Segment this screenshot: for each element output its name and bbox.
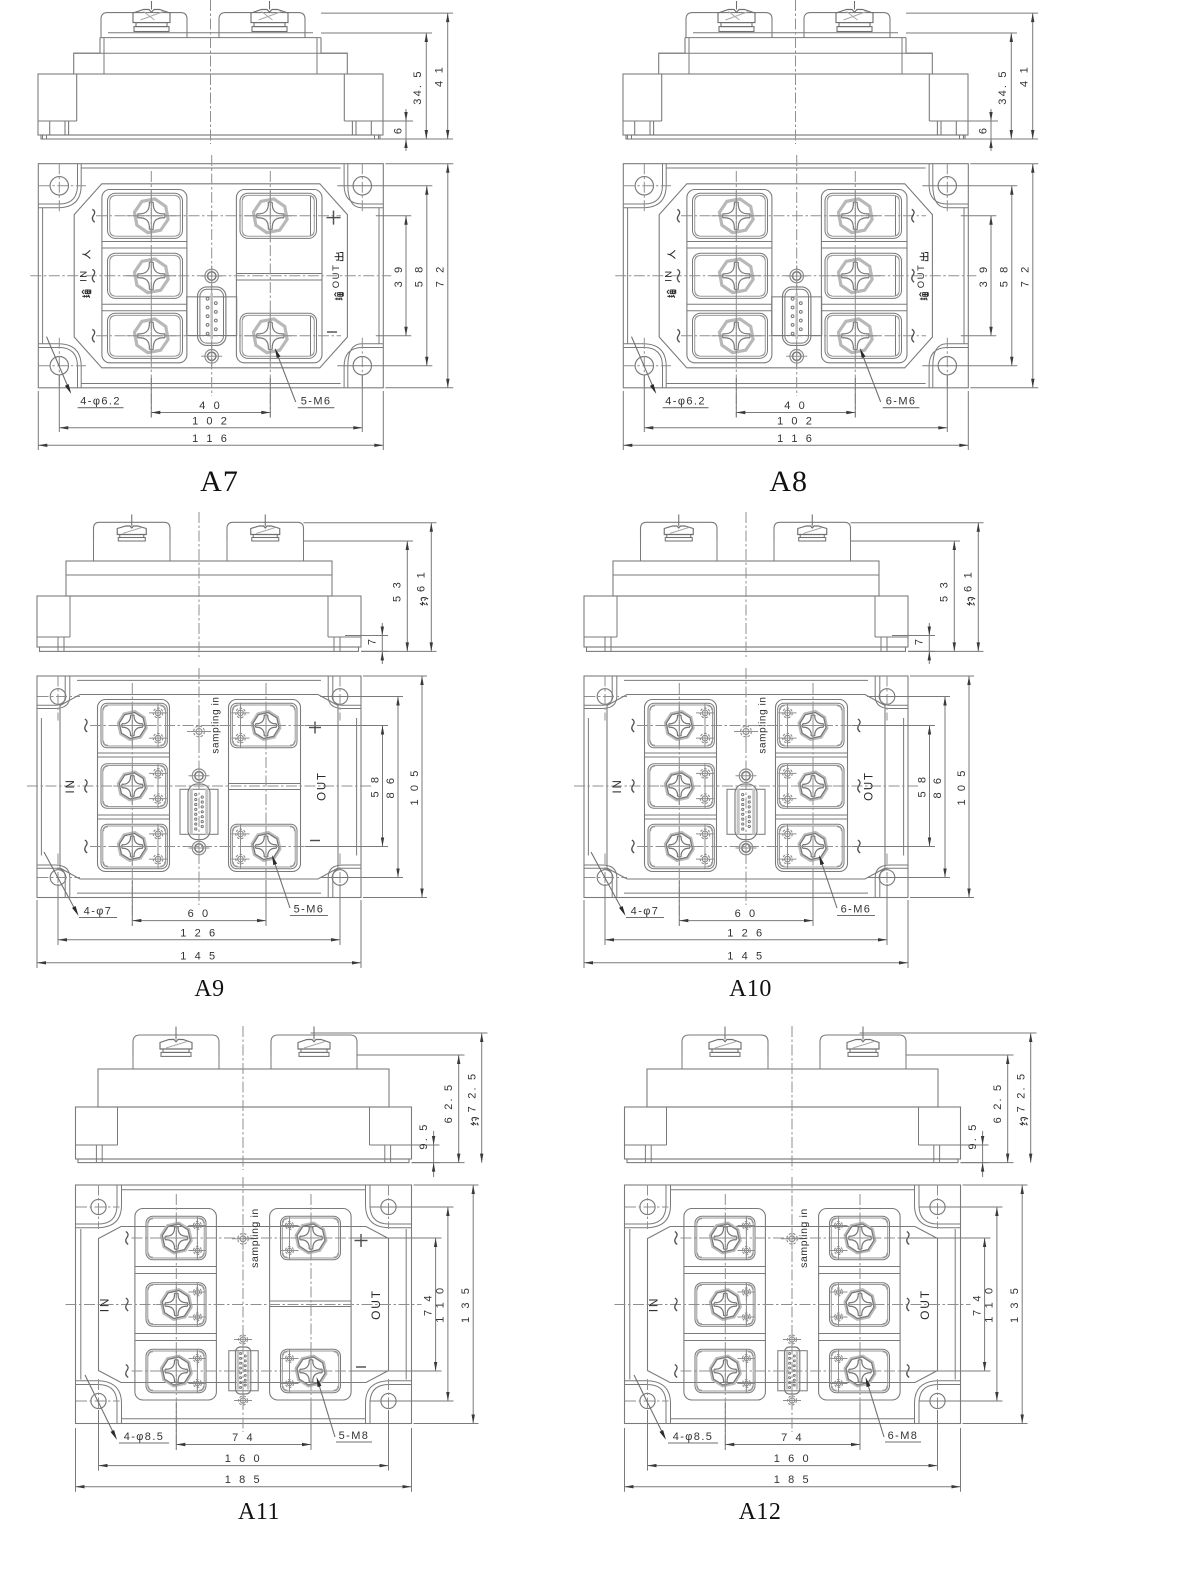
svg-text:7 4: 7 4 bbox=[232, 1432, 255, 1444]
svg-text:1 1 0: 1 1 0 bbox=[435, 1285, 447, 1322]
svg-text:5 8: 5 8 bbox=[414, 264, 426, 287]
svg-text:4-φ6.2: 4-φ6.2 bbox=[80, 396, 121, 408]
svg-text:6 2. 5: 6 2. 5 bbox=[992, 1083, 1004, 1124]
svg-text:IN: IN bbox=[612, 778, 624, 793]
svg-text:1 0 2: 1 0 2 bbox=[777, 415, 814, 427]
svg-text:6 1: 6 1 bbox=[963, 570, 975, 592]
svg-text:1 8 5: 1 8 5 bbox=[774, 1474, 811, 1486]
svg-text:8 6: 8 6 bbox=[385, 775, 397, 798]
svg-text:5-M6: 5-M6 bbox=[301, 396, 332, 408]
svg-text:7 4: 7 4 bbox=[971, 1293, 983, 1316]
svg-text:4-φ6.2: 4-φ6.2 bbox=[665, 396, 706, 408]
svg-text:3 9: 3 9 bbox=[393, 264, 405, 287]
svg-text:1 6 0: 1 6 0 bbox=[774, 1453, 811, 1465]
svg-text:A7: A7 bbox=[200, 465, 239, 498]
svg-text:IN: IN bbox=[98, 1297, 112, 1313]
svg-text:A12: A12 bbox=[739, 1499, 782, 1525]
svg-text:IN: IN bbox=[664, 269, 675, 282]
svg-text:1 3 5: 1 3 5 bbox=[1009, 1286, 1021, 1323]
svg-text:6-M6: 6-M6 bbox=[841, 904, 872, 916]
svg-text:1 4 5: 1 4 5 bbox=[180, 950, 217, 962]
svg-text:5-M8: 5-M8 bbox=[339, 1430, 370, 1442]
svg-text:1 0 5: 1 0 5 bbox=[409, 768, 421, 805]
svg-text:4-φ8.5: 4-φ8.5 bbox=[673, 1431, 714, 1443]
svg-text:34. 5: 34. 5 bbox=[412, 69, 424, 104]
svg-text:1 2 6: 1 2 6 bbox=[180, 927, 217, 939]
svg-text:IN: IN bbox=[65, 778, 77, 793]
svg-text:8 6: 8 6 bbox=[932, 775, 944, 798]
svg-text:4 0: 4 0 bbox=[784, 400, 807, 412]
svg-text:6-M8: 6-M8 bbox=[888, 1430, 919, 1442]
svg-text:1 6 0: 1 6 0 bbox=[225, 1453, 262, 1465]
svg-text:A11: A11 bbox=[238, 1499, 280, 1525]
svg-text:4-φ7: 4-φ7 bbox=[84, 906, 113, 918]
svg-text:3 9: 3 9 bbox=[978, 264, 990, 287]
svg-text:7: 7 bbox=[914, 637, 926, 645]
svg-text:4 1: 4 1 bbox=[1018, 65, 1030, 87]
svg-text:7 4: 7 4 bbox=[422, 1293, 434, 1316]
svg-text:6 0: 6 0 bbox=[188, 908, 211, 920]
svg-text:OUT: OUT bbox=[863, 771, 875, 801]
svg-text:1 1 6: 1 1 6 bbox=[192, 433, 229, 445]
svg-text:1 4 5: 1 4 5 bbox=[727, 950, 764, 962]
svg-text:7 2: 7 2 bbox=[1020, 264, 1032, 287]
svg-text:4-φ7: 4-φ7 bbox=[631, 906, 660, 918]
svg-text:OUT: OUT bbox=[916, 264, 927, 289]
svg-text:IN: IN bbox=[79, 269, 90, 282]
svg-text:6-M6: 6-M6 bbox=[886, 396, 917, 408]
svg-text:4-φ8.5: 4-φ8.5 bbox=[124, 1431, 165, 1443]
svg-text:9. 5: 9. 5 bbox=[418, 1122, 430, 1149]
svg-text:7: 7 bbox=[367, 637, 379, 645]
svg-text:5 3: 5 3 bbox=[939, 580, 951, 602]
svg-text:7 4: 7 4 bbox=[781, 1432, 804, 1444]
svg-text:6 0: 6 0 bbox=[735, 908, 758, 920]
svg-text:6 1: 6 1 bbox=[416, 570, 428, 592]
svg-text:5 3: 5 3 bbox=[392, 580, 404, 602]
svg-text:5 8: 5 8 bbox=[369, 774, 381, 797]
svg-text:7 2. 5: 7 2. 5 bbox=[466, 1072, 478, 1113]
svg-text:9. 5: 9. 5 bbox=[967, 1122, 979, 1149]
svg-text:5 8: 5 8 bbox=[916, 774, 928, 797]
svg-text:1 8 5: 1 8 5 bbox=[225, 1474, 262, 1486]
svg-text:1 2 6: 1 2 6 bbox=[727, 927, 764, 939]
svg-text:5 8: 5 8 bbox=[999, 264, 1011, 287]
svg-text:1 1 0: 1 1 0 bbox=[984, 1285, 996, 1322]
svg-text:A8: A8 bbox=[769, 465, 808, 498]
svg-text:A10: A10 bbox=[729, 976, 772, 1002]
svg-text:34. 5: 34. 5 bbox=[997, 69, 1009, 104]
svg-text:A9: A9 bbox=[194, 976, 224, 1002]
svg-text:IN: IN bbox=[647, 1297, 661, 1313]
svg-text:1 1 6: 1 1 6 bbox=[777, 433, 814, 445]
svg-text:6: 6 bbox=[978, 126, 990, 134]
svg-text:6: 6 bbox=[393, 126, 405, 134]
svg-text:7 2. 5: 7 2. 5 bbox=[1015, 1072, 1027, 1113]
svg-text:OUT: OUT bbox=[331, 264, 342, 289]
svg-text:4 1: 4 1 bbox=[433, 65, 445, 87]
svg-text:1 0 2: 1 0 2 bbox=[192, 415, 229, 427]
svg-text:1 3 5: 1 3 5 bbox=[460, 1286, 472, 1323]
svg-text:OUT: OUT bbox=[369, 1289, 383, 1320]
svg-text:4 0: 4 0 bbox=[199, 400, 222, 412]
svg-text:OUT: OUT bbox=[918, 1289, 932, 1320]
svg-text:OUT: OUT bbox=[316, 771, 328, 801]
svg-text:6 2. 5: 6 2. 5 bbox=[443, 1083, 455, 1124]
svg-text:5-M6: 5-M6 bbox=[294, 904, 325, 916]
svg-text:1 0 5: 1 0 5 bbox=[956, 768, 968, 805]
svg-text:7 2: 7 2 bbox=[435, 264, 447, 287]
